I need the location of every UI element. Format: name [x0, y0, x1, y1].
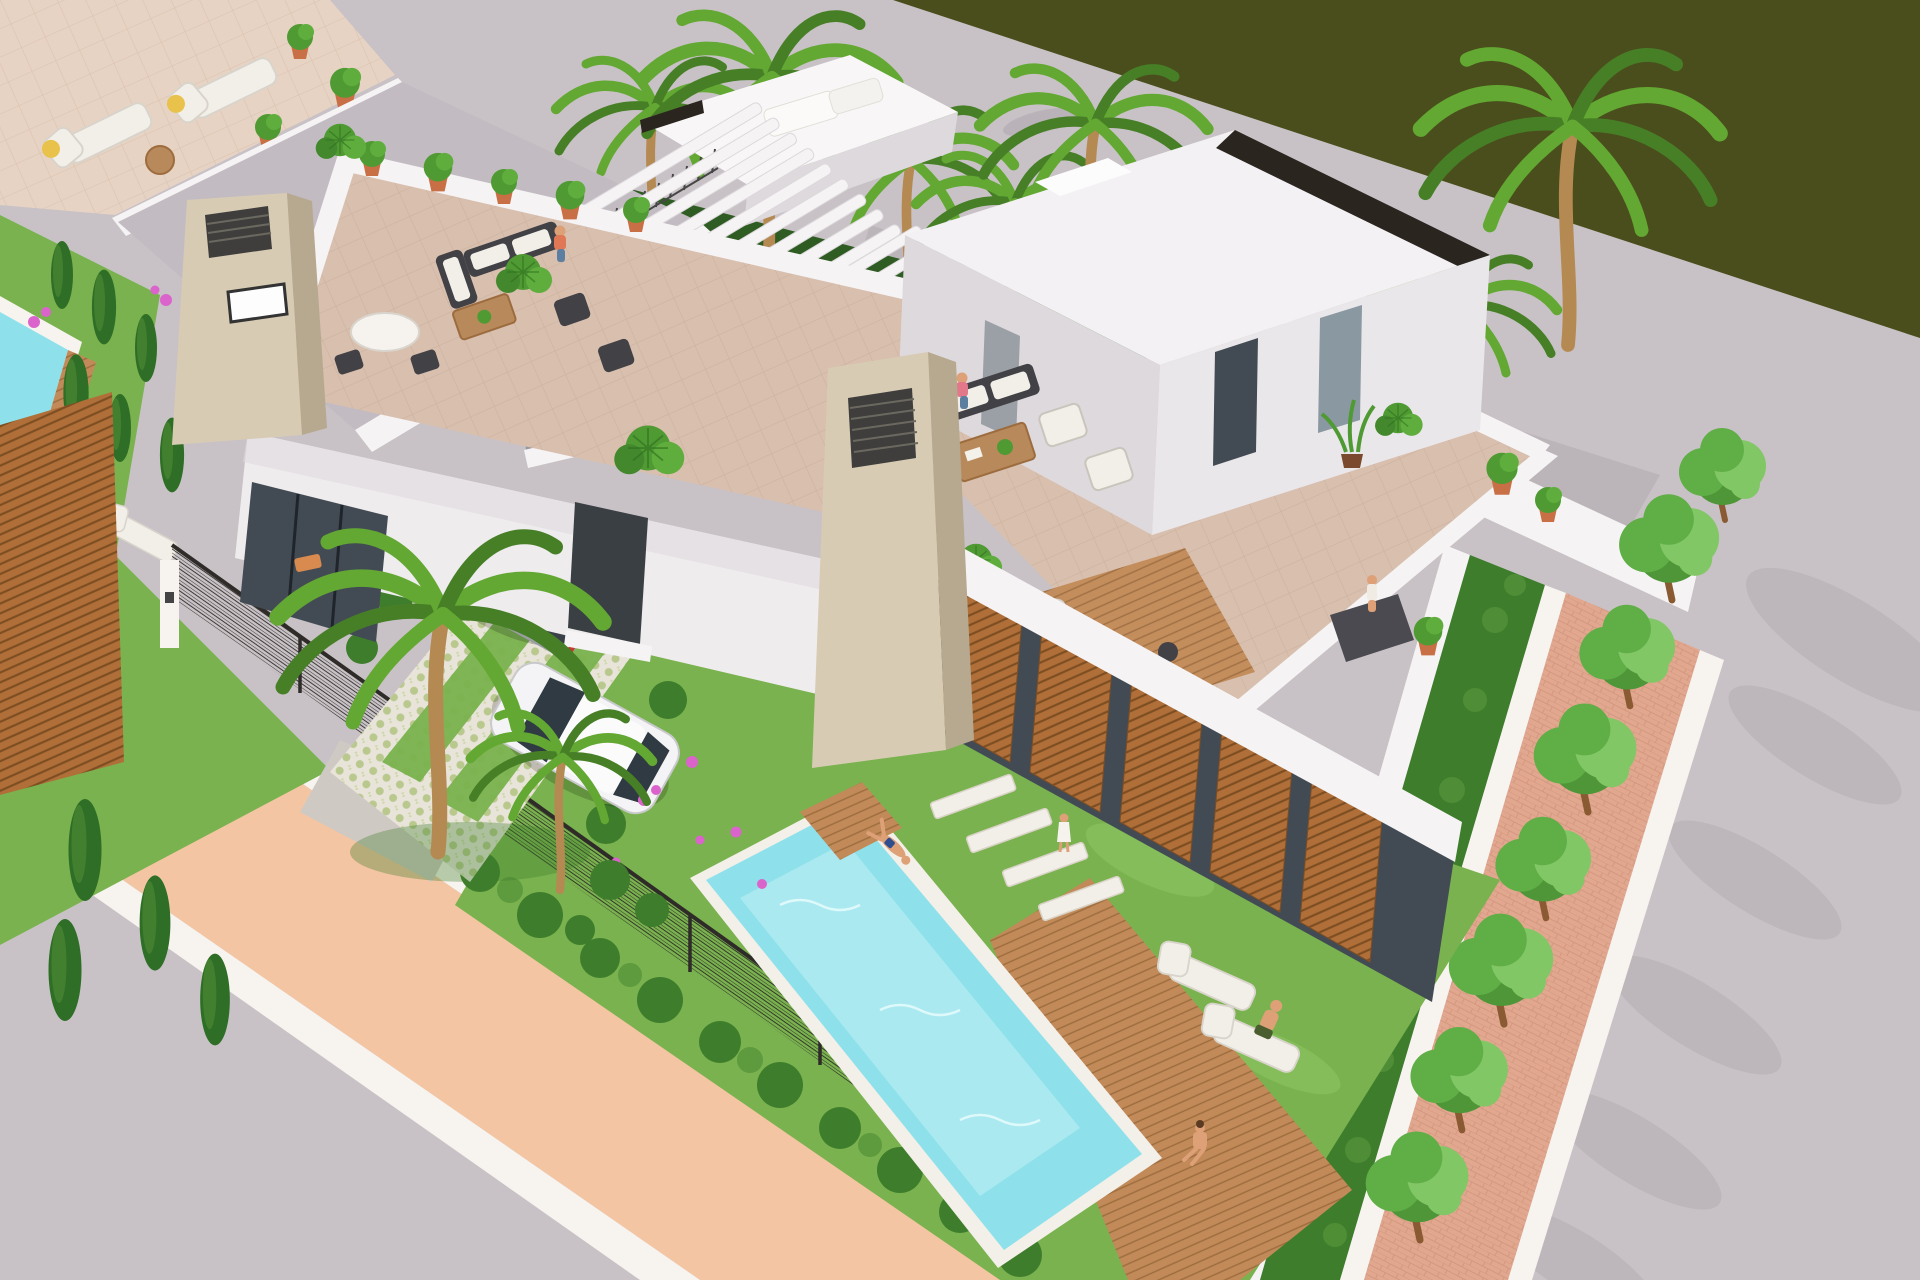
- side-table: [146, 146, 174, 174]
- stone-chimney-left: [172, 193, 327, 445]
- chimney-window: [228, 284, 287, 322]
- yoga-person: [1367, 575, 1377, 612]
- villa-render: Aerial 3D render of a modern white villa…: [0, 0, 1920, 1280]
- terrace-door: [1213, 338, 1258, 466]
- render-canvas: [0, 0, 1920, 1280]
- entry-door: [564, 502, 652, 662]
- round-table: [351, 313, 419, 351]
- wood-louver-wall-left: [0, 392, 124, 795]
- gate-pillar: [160, 560, 179, 648]
- house-number-plaque: [165, 592, 174, 603]
- palm-shadow: [350, 822, 590, 882]
- stone-chimney-main: [812, 352, 974, 768]
